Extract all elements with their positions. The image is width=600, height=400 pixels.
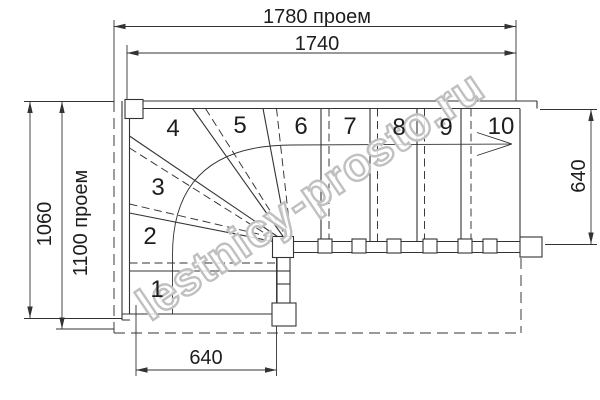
dimension-left-opening: 1100 проем bbox=[70, 158, 92, 288]
top-left-post bbox=[125, 100, 143, 119]
railing bbox=[272, 237, 542, 327]
baluster bbox=[277, 271, 290, 284]
dimension-lines bbox=[24, 20, 597, 376]
bottom-newel-post bbox=[272, 303, 296, 326]
corner-newel-post bbox=[273, 237, 294, 258]
baluster bbox=[352, 239, 366, 253]
step-number-9: 9 bbox=[434, 115, 458, 141]
baluster bbox=[483, 239, 497, 253]
step-number-5: 5 bbox=[228, 113, 252, 139]
dimension-top-inner: 1740 bbox=[277, 33, 357, 55]
baluster bbox=[318, 239, 332, 253]
staircase-plan-drawing: lestnicy-prosto.ru 1780 проем 1740 1060 … bbox=[0, 0, 600, 400]
dimension-right-width: 640 bbox=[568, 146, 590, 206]
step-number-6: 6 bbox=[289, 114, 313, 140]
baluster bbox=[387, 239, 401, 253]
dimension-bottom-width: 640 bbox=[176, 347, 236, 369]
step-number-7: 7 bbox=[338, 114, 362, 140]
dimension-left-height: 1060 bbox=[34, 184, 56, 264]
step-number-3: 3 bbox=[146, 175, 170, 201]
step-number-1: 1 bbox=[145, 277, 169, 303]
right-railing-post bbox=[520, 237, 542, 257]
baluster bbox=[458, 239, 472, 253]
step-number-4: 4 bbox=[161, 116, 185, 142]
dimension-top-opening: 1780 проем bbox=[237, 6, 397, 28]
baluster bbox=[423, 239, 437, 253]
step-number-8: 8 bbox=[387, 115, 411, 141]
step-number-2: 2 bbox=[138, 224, 162, 250]
step-number-10: 10 bbox=[483, 114, 519, 140]
